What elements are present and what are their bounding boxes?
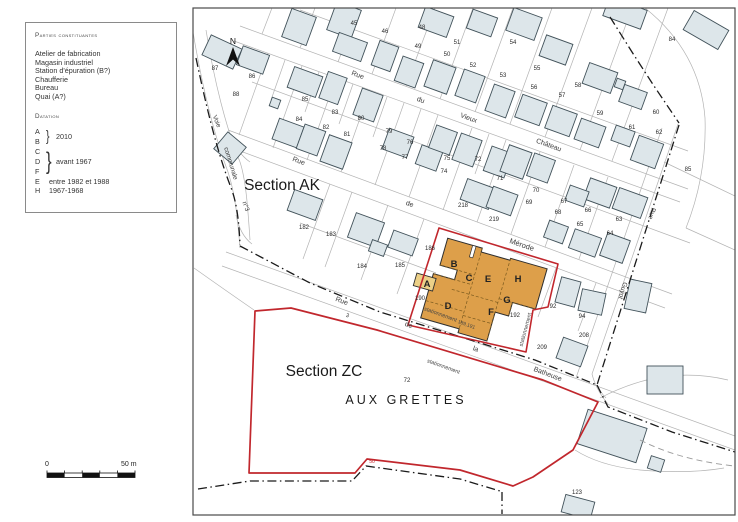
building — [368, 240, 387, 257]
parcel-number: 92 — [550, 304, 557, 310]
parcel-number: 79 — [386, 129, 393, 135]
datation-letter: E — [35, 177, 49, 187]
building — [332, 32, 367, 61]
parcel-number: 63 — [616, 217, 623, 223]
datation-letter: F — [35, 167, 45, 177]
parcel-number: 186 — [425, 246, 436, 252]
map-annotation: 3 — [345, 313, 350, 320]
parcel-number: 57 — [559, 93, 566, 99]
datation-letter: H — [35, 186, 49, 196]
building — [582, 63, 618, 94]
building — [327, 1, 362, 38]
building — [515, 94, 548, 125]
parcel-number: 87 — [212, 66, 219, 72]
building — [539, 35, 573, 65]
parcel-number: 66 — [585, 208, 592, 214]
building — [287, 190, 323, 221]
parcel-number: 84 — [669, 37, 676, 43]
building — [556, 337, 588, 367]
parcel-number: 68 — [555, 210, 562, 216]
parcel-number: 60 — [653, 110, 660, 116]
map-annotation: stationnement — [519, 312, 534, 347]
building — [577, 409, 647, 462]
parcel-number: 80 — [358, 116, 365, 122]
parcel-number: 45 — [351, 21, 358, 27]
parcel-number: 86 — [249, 74, 256, 80]
building — [612, 188, 648, 219]
building-letter: E — [485, 274, 491, 285]
building — [455, 69, 485, 103]
parcel-number: 77 — [402, 155, 409, 161]
street-name: Rue — [646, 207, 656, 221]
parcel-number: 50 — [444, 52, 451, 58]
parcel-number: 55 — [534, 66, 541, 72]
map-annotation: stationnement — [426, 358, 461, 376]
datation-row-e: E entre 1982 et 1988 — [35, 177, 176, 187]
datation-letter: C — [35, 147, 45, 157]
parcel-number: 61 — [629, 125, 636, 131]
street-name: la — [472, 345, 480, 353]
datation-letter: D — [35, 157, 45, 167]
parcel-number: 75 — [444, 156, 451, 162]
building — [418, 7, 454, 38]
building — [485, 84, 515, 118]
section-label: Section ZC — [286, 363, 363, 380]
street-names-layer: RueduVieuxChâteauRuedeMérodeRuedelaBathe… — [211, 70, 657, 383]
parcel-number: 56 — [531, 85, 538, 91]
street-name: du — [416, 96, 426, 105]
section-label: Section AK — [244, 177, 320, 194]
parcel-number: 67 — [561, 199, 568, 205]
parcel-number: 184 — [357, 264, 368, 270]
parcel-number: 53 — [500, 73, 507, 79]
parcel-number: 84 — [296, 117, 303, 123]
building — [619, 84, 648, 109]
datation-value: avant 1967 — [56, 157, 92, 166]
datation-letter: A — [35, 127, 45, 137]
parcel-number: 49 — [415, 44, 422, 50]
building — [545, 105, 578, 136]
parcel-number: 182 — [299, 225, 310, 231]
building — [269, 97, 281, 109]
parcel-number: 48 — [419, 25, 426, 31]
street-name: n°3 — [240, 200, 251, 212]
building — [561, 494, 595, 519]
building-letter: D — [445, 301, 452, 312]
parcel-number: 208 — [579, 333, 590, 339]
cadastral-plan-page: 8786888584838281807978777675744546484950… — [0, 0, 738, 522]
parcel-number: 94 — [579, 314, 586, 320]
legend-item: Quai (A?) — [35, 93, 176, 102]
building — [647, 456, 664, 473]
parcel-number: 76 — [407, 140, 414, 146]
parcel-number: 51 — [454, 40, 461, 46]
parcel-number: 88 — [233, 92, 240, 98]
parcel-number: 64 — [607, 231, 614, 237]
datation-group-cdf: C D F } avant 1967 — [35, 147, 176, 177]
datation-letter: B — [35, 137, 45, 147]
building-letter: G — [503, 295, 510, 306]
scale-end: 50 m — [121, 461, 137, 468]
parcel-number: 52 — [470, 63, 477, 69]
parcel-number: 123 — [572, 490, 583, 496]
parcel-number: 74 — [441, 169, 448, 175]
building-letter: F — [488, 307, 494, 318]
parcel-number: 72 — [475, 157, 482, 163]
parcel-number: 192 — [510, 313, 521, 319]
parcel-number: 185 — [395, 263, 406, 269]
parcel-number: 62 — [656, 130, 663, 136]
building-letter: A — [424, 279, 431, 290]
parcel-number: 183 — [326, 232, 337, 238]
parcel-number: 78 — [380, 146, 387, 152]
building — [320, 135, 352, 170]
building — [371, 40, 399, 71]
building — [236, 46, 269, 74]
street-name: Rue — [350, 70, 365, 81]
datation-group-ab: A B } 2010 — [35, 127, 176, 147]
parcel-number: 70 — [533, 188, 540, 194]
parcel-number: 58 — [575, 83, 582, 89]
brace-glyph: } — [46, 150, 51, 174]
place-name: AUX GRETTES — [345, 393, 466, 407]
parcel-number: 65 — [577, 222, 584, 228]
brace-glyph: } — [46, 129, 51, 144]
datation-value: 2010 — [56, 132, 72, 141]
building — [568, 229, 601, 257]
parcel-number: 190 — [415, 296, 426, 302]
north-label: N — [230, 36, 236, 46]
datation-value: entre 1982 et 1988 — [49, 177, 109, 187]
parcel-number: 209 — [537, 345, 548, 351]
building-letter: C — [466, 273, 473, 284]
parcel-number: 54 — [510, 40, 517, 46]
parcel-number: 85 — [685, 167, 692, 173]
legend-panel: Parties constituantes Atelier de fabrica… — [25, 22, 177, 213]
building — [603, 0, 647, 29]
building-letter: H — [515, 274, 522, 285]
parcel-number: 59 — [597, 111, 604, 117]
datation-value: 1967-1968 — [49, 186, 83, 196]
parcel-number: 219 — [489, 217, 500, 223]
parcel-number: 82 — [323, 125, 330, 131]
datation-title: Datation — [35, 113, 176, 120]
parcel-number: 46 — [382, 29, 389, 35]
scale-bar: 0 50 m — [45, 461, 137, 478]
parcel-number: 69 — [526, 200, 533, 206]
building — [647, 366, 683, 394]
building — [683, 10, 729, 49]
legend-title: Parties constituantes — [35, 32, 176, 39]
parcel-number: 72 — [404, 378, 411, 384]
building — [600, 233, 631, 264]
building — [578, 289, 606, 316]
building — [565, 185, 589, 207]
scale-zero: 0 — [45, 461, 49, 468]
street-name: de — [404, 321, 414, 330]
parcel-number: 218 — [458, 203, 469, 209]
parcel-number: 85 — [302, 97, 309, 103]
map-annotation: 50 — [369, 459, 375, 465]
building — [388, 230, 419, 256]
parcel-number: 71 — [497, 176, 504, 182]
datation-row-h: H 1967-1968 — [35, 186, 176, 196]
street-name: de — [405, 200, 415, 209]
building — [574, 118, 606, 148]
building — [394, 56, 424, 88]
parcel-number: 81 — [344, 132, 351, 138]
building — [555, 277, 581, 307]
parcel-number: 83 — [332, 110, 339, 116]
building-letter: B — [451, 259, 458, 270]
